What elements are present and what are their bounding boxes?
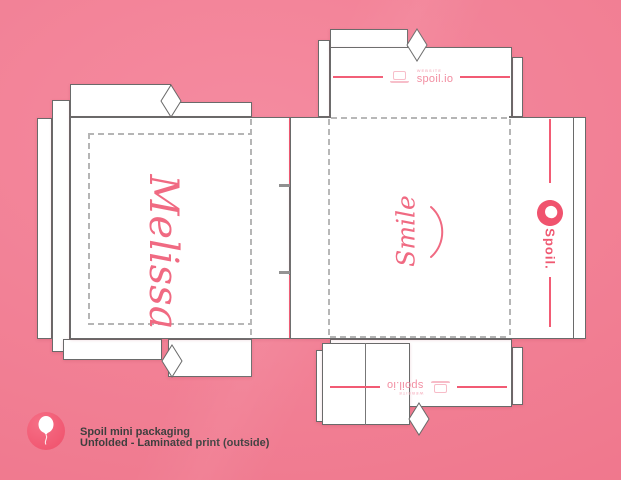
smile-script: Smile <box>392 195 421 267</box>
pink-rule <box>330 386 380 388</box>
left-top-flap-tall <box>70 84 171 117</box>
packaging-mockup: Melissa WEBSITE spoil.io <box>0 0 621 480</box>
laptop-icon <box>390 71 410 84</box>
top-flap-raised-part <box>330 29 408 49</box>
website-url: spoil.io <box>417 74 454 85</box>
website-row-bottom: WEBSITE spoil.io <box>330 374 507 400</box>
pink-rule <box>460 76 510 78</box>
fold-line <box>88 133 90 325</box>
right-top-side-strip-left <box>318 40 330 117</box>
caption-subtitle: Unfolded - Laminated print (outside) <box>80 438 269 449</box>
brand-rule-bottom <box>549 277 551 327</box>
left-top-flap-short <box>171 102 252 117</box>
right-top-side-strip-right <box>512 57 523 117</box>
fold-line <box>330 336 510 338</box>
diamond-notch-top-left <box>160 84 182 118</box>
fold-line <box>250 119 252 337</box>
right-bottom-side-strip-right <box>512 347 523 405</box>
fold-line <box>331 117 509 119</box>
left-bottom-flap-short <box>63 339 162 360</box>
left-inner-side-flap <box>52 100 70 352</box>
pink-rule <box>333 76 383 78</box>
diamond-notch-bottom-left <box>161 344 183 378</box>
printed-name-script: Melissa <box>140 174 186 329</box>
brand-rule-top <box>549 119 551 183</box>
right-glue-strip <box>573 117 586 339</box>
diamond-notch-bottom-right <box>408 402 430 436</box>
smile-arc <box>427 204 453 260</box>
spoil-balloon-logo <box>536 199 564 227</box>
fold-line <box>509 119 511 337</box>
website-label: WEBSITE <box>398 391 423 395</box>
website-url: spoil.io <box>387 379 424 390</box>
laptop-icon <box>430 381 450 394</box>
diamond-notch-top-right <box>406 28 428 62</box>
pink-rule <box>457 386 507 388</box>
fold-line <box>328 119 330 337</box>
fold-line <box>88 133 251 135</box>
left-outer-side-flap <box>37 118 52 339</box>
balloon-icon <box>27 412 65 450</box>
caption-text: Spoil mini packaging Unfolded - Laminate… <box>80 427 269 449</box>
brand-wordmark: Spoil. <box>543 228 558 269</box>
website-row-top: WEBSITE spoil.io <box>333 64 510 90</box>
caption-logo-circle <box>27 412 65 450</box>
